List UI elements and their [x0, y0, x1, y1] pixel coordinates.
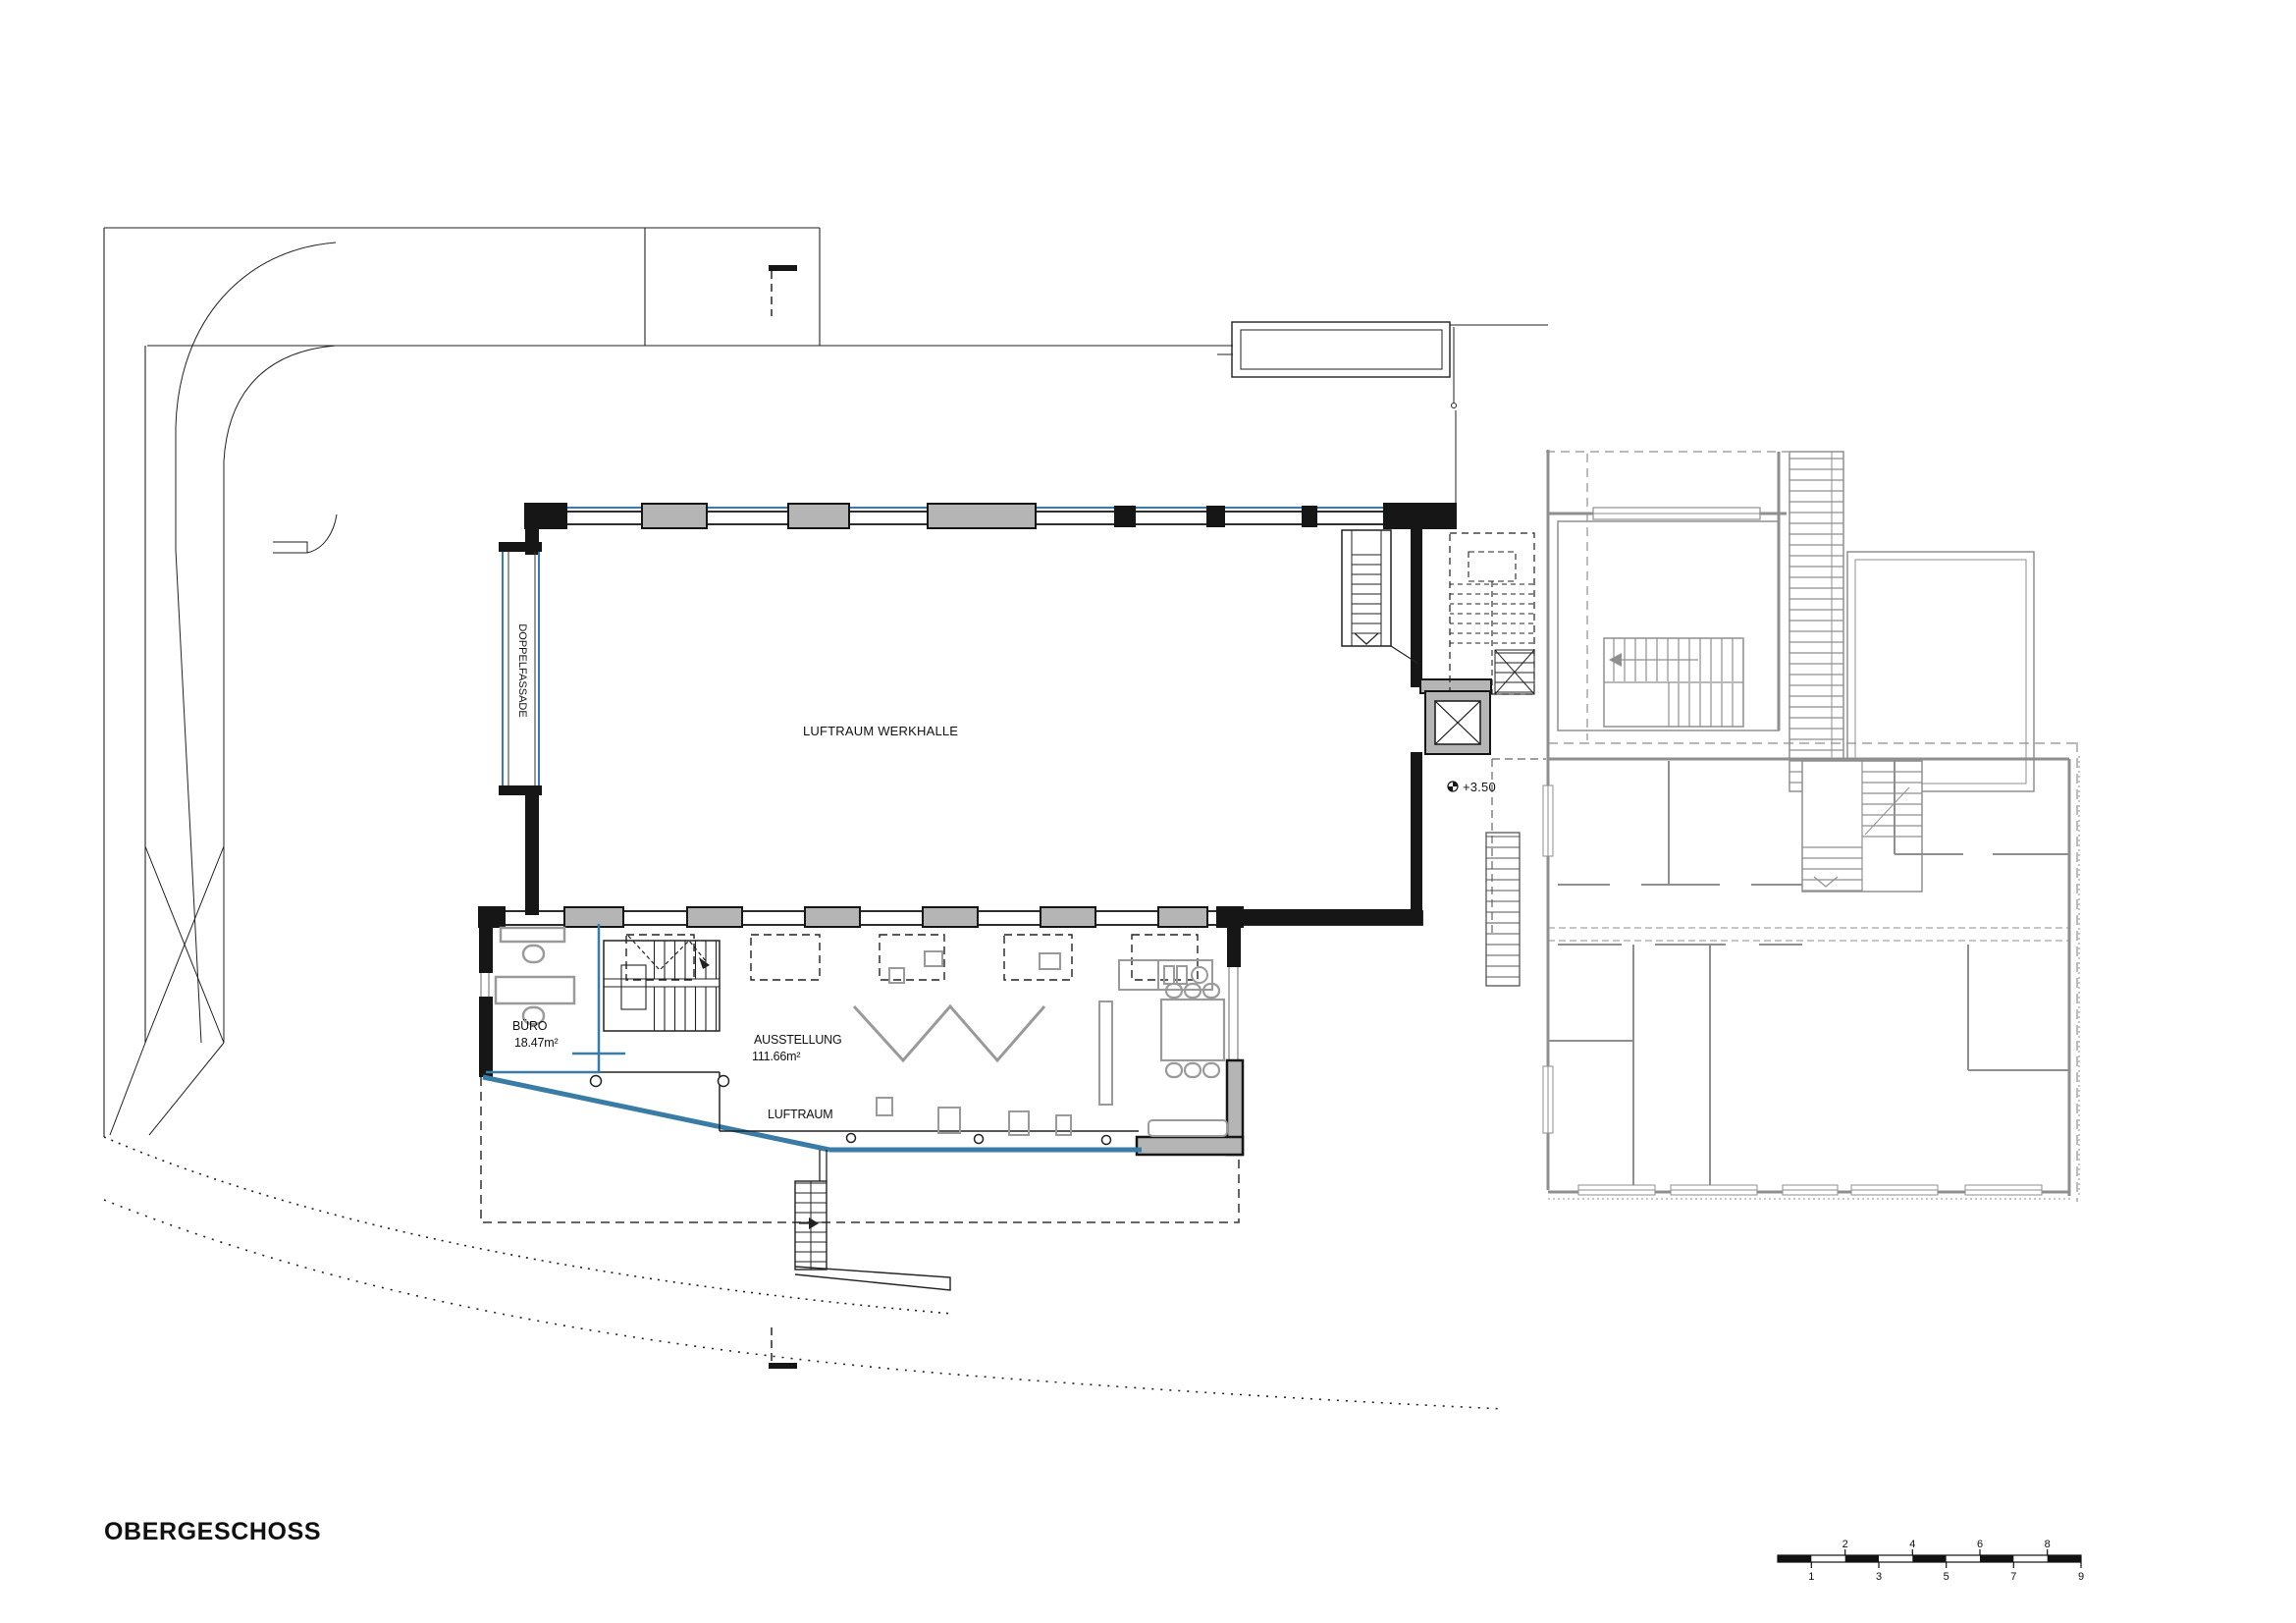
doppelfassade-label: DOPPELFASSADE	[516, 623, 528, 717]
apartment-axis-dashes	[1548, 928, 2069, 941]
facade-posts	[591, 1076, 1111, 1145]
terrain-contour-lines	[104, 1137, 1504, 1409]
scale-number-3: 3	[1876, 1571, 1882, 1583]
hall-stair	[1342, 530, 1418, 664]
exhibit-display-panel	[1099, 1001, 1112, 1105]
north-wall-piers	[525, 504, 1456, 528]
luftraum-edge	[601, 1072, 1139, 1131]
scale-bar: 1 2 3 4 5 6 7 8 9	[1778, 1539, 2084, 1583]
dining-table	[1161, 984, 1224, 1077]
scale-number-4: 4	[1909, 1539, 1915, 1550]
ausstellung-area: 111.66m²	[752, 1050, 800, 1063]
drawing-title: OBERGESCHOSS	[104, 1518, 321, 1545]
east-wall-mid	[1411, 752, 1422, 829]
doppelfassade-cap-bottom	[499, 785, 542, 795]
south-wall-piers	[479, 907, 1422, 927]
exterior-south-stair	[795, 1150, 827, 1270]
buero-area: 18.47m²	[514, 1036, 558, 1050]
buero-desk	[496, 928, 574, 1024]
apartment-core-stair	[1802, 761, 1922, 892]
apartment-roof-outline	[1847, 552, 2034, 791]
bench	[1148, 1120, 1227, 1136]
section-marker-top	[769, 265, 797, 316]
scale-number-9: 9	[2078, 1571, 2084, 1583]
apartment-tall-stair	[1789, 452, 1843, 791]
ausstellung-west-wall-b	[479, 997, 493, 1077]
ausstellung-label: AUSSTELLUNG	[754, 1033, 842, 1047]
exterior-side-stair	[1486, 833, 1520, 986]
scale-number-2: 2	[1842, 1539, 1848, 1550]
luftraum-label: LUFTRAUM	[768, 1108, 832, 1121]
scale-number-8: 8	[2045, 1539, 2051, 1550]
scale-number-5: 5	[1944, 1571, 1949, 1583]
exhibit-plinths	[877, 951, 1071, 1135]
access-road	[176, 243, 337, 1043]
apartment-window-bands	[1543, 785, 2042, 1195]
exhibit-zigzag	[854, 1006, 1044, 1060]
ausstellung-east-wall-a	[1227, 924, 1241, 967]
doppelfassade: DOPPELFASSADE	[499, 542, 542, 795]
section-marker-bottom	[769, 1327, 797, 1369]
apartment-interior-stair	[1604, 638, 1743, 727]
werkhalle-label: LUFTRAUM WERKHALLE	[803, 724, 958, 738]
scale-number-1: 1	[1808, 1571, 1814, 1583]
west-wall-lower	[525, 785, 539, 915]
dashed-stair-above	[1450, 533, 1534, 694]
apartment-top-window-band	[1593, 508, 1760, 519]
werkhalle: LUFTRAUM WERKHALLE	[479, 504, 1491, 927]
parcel-cross	[110, 846, 224, 1135]
floor-plan-canvas: LUFTRAUM WERKHALLE DOPPELFASSADE	[0, 0, 2296, 1623]
floor-plan-page: LUFTRAUM WERKHALLE DOPPELFASSADE	[0, 0, 2296, 1623]
doppelfassade-cap-top	[499, 542, 542, 552]
ausstellung-stair	[604, 936, 720, 1031]
elevation-marker: +3.50	[1448, 780, 1496, 794]
ausstellung-south-wall	[1137, 1137, 1243, 1155]
elevation-label: +3.50	[1463, 780, 1496, 794]
garage-outline	[1217, 322, 1548, 510]
ausstellung-west-wall-a	[479, 924, 493, 973]
scale-number-6: 6	[1977, 1539, 1983, 1550]
existing-apartment-building	[1543, 450, 2079, 1202]
ausstellung-wing: BÜRO 18.47m² AUSSTELLUNG 111.66m² LUFTRA…	[479, 924, 1243, 1222]
east-wall-lower	[1411, 829, 1422, 925]
scale-number-7: 7	[2010, 1571, 2016, 1583]
buero-label: BÜRO	[512, 1019, 548, 1033]
elevator-shaft	[1425, 691, 1490, 754]
